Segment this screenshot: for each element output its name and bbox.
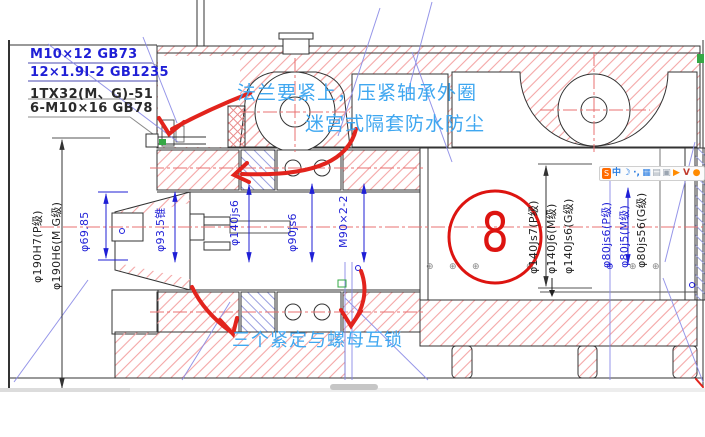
note-screw-spec: 6-M10×16 GB78 [30, 101, 153, 116]
horizontal-scrollbar-thumb[interactable] [330, 384, 378, 390]
dim-tail-bearing-g: φ80js56(G级) [635, 193, 648, 268]
chinese-mode-icon[interactable]: 中 [612, 167, 621, 180]
dim-shaft-mid: φ90js6 [286, 213, 299, 252]
dim-rear-bearing-g: φ140Js6(G级) [562, 198, 575, 274]
note-seal-spec: 1TX32(M、G)-51 [30, 83, 153, 102]
dim-housing-bore-mg: φ190H6(M G级) [50, 202, 63, 290]
play-icon[interactable]: ▶ [672, 167, 681, 180]
dim-front-bearing: φ140js6 [228, 200, 241, 246]
balloon-number: 8 [477, 202, 512, 264]
punctuation-icon[interactable]: ·, [632, 167, 641, 180]
half-width-moon-icon[interactable]: ☽ [622, 167, 631, 180]
dim-nose-front: φ69.85 [78, 211, 91, 252]
dim-rear-bearing-p: φ140Js7(P级) [527, 200, 540, 274]
position-mark-icon: ⊕ [652, 262, 660, 272]
menu-icon[interactable]: ▤ [652, 167, 661, 180]
dim-nose-taper: φ93.5锥 [154, 207, 167, 252]
dim-thread: M90×2-2 [337, 195, 350, 248]
green-marker [159, 139, 166, 145]
note-bolt-spec: M10×12 GB73 [30, 47, 138, 62]
dim-housing-bore-p: φ190H7(P级) [31, 210, 44, 283]
voice-icon[interactable]: V [682, 167, 691, 180]
callout-locking: 三个紧定与螺母互锁 [232, 326, 403, 352]
clipboard-icon[interactable]: ▣ [662, 167, 671, 180]
soft-keyboard-icon[interactable]: ▦ [642, 167, 651, 180]
ime-toolbar[interactable]: S 中 ☽ ·, ▦ ▤ ▣ ▶ V ● [599, 166, 705, 181]
position-mark-icon: ⊕ [449, 262, 457, 272]
settings-icon[interactable]: ● [692, 167, 701, 180]
callout-labyrinth: 迷宫式隔套防水防尘 [305, 109, 485, 136]
dim-rear-bearing-m: φ140J6(M级) [545, 203, 558, 274]
dim-tail-bearing-p: φ80js6(P级) [600, 202, 613, 268]
cad-screenshot: ⊕ ⊕ ⊕ ⊕ ⊕ ⊕ ⊕ [0, 0, 705, 437]
green-marker [697, 54, 704, 63]
callout-flange: 法兰要紧上，压紧轴承外圈 [237, 78, 477, 105]
horizontal-scrollbar-track-left[interactable] [0, 388, 130, 392]
position-mark-icon: ⊕ [426, 262, 434, 272]
note-key-spec: 12×1.9Ⅰ-2 GB1235 [30, 65, 169, 80]
dim-tail-bearing-m: φ80j5(M级) [618, 205, 631, 268]
ime-logo-icon[interactable]: S [602, 168, 611, 179]
